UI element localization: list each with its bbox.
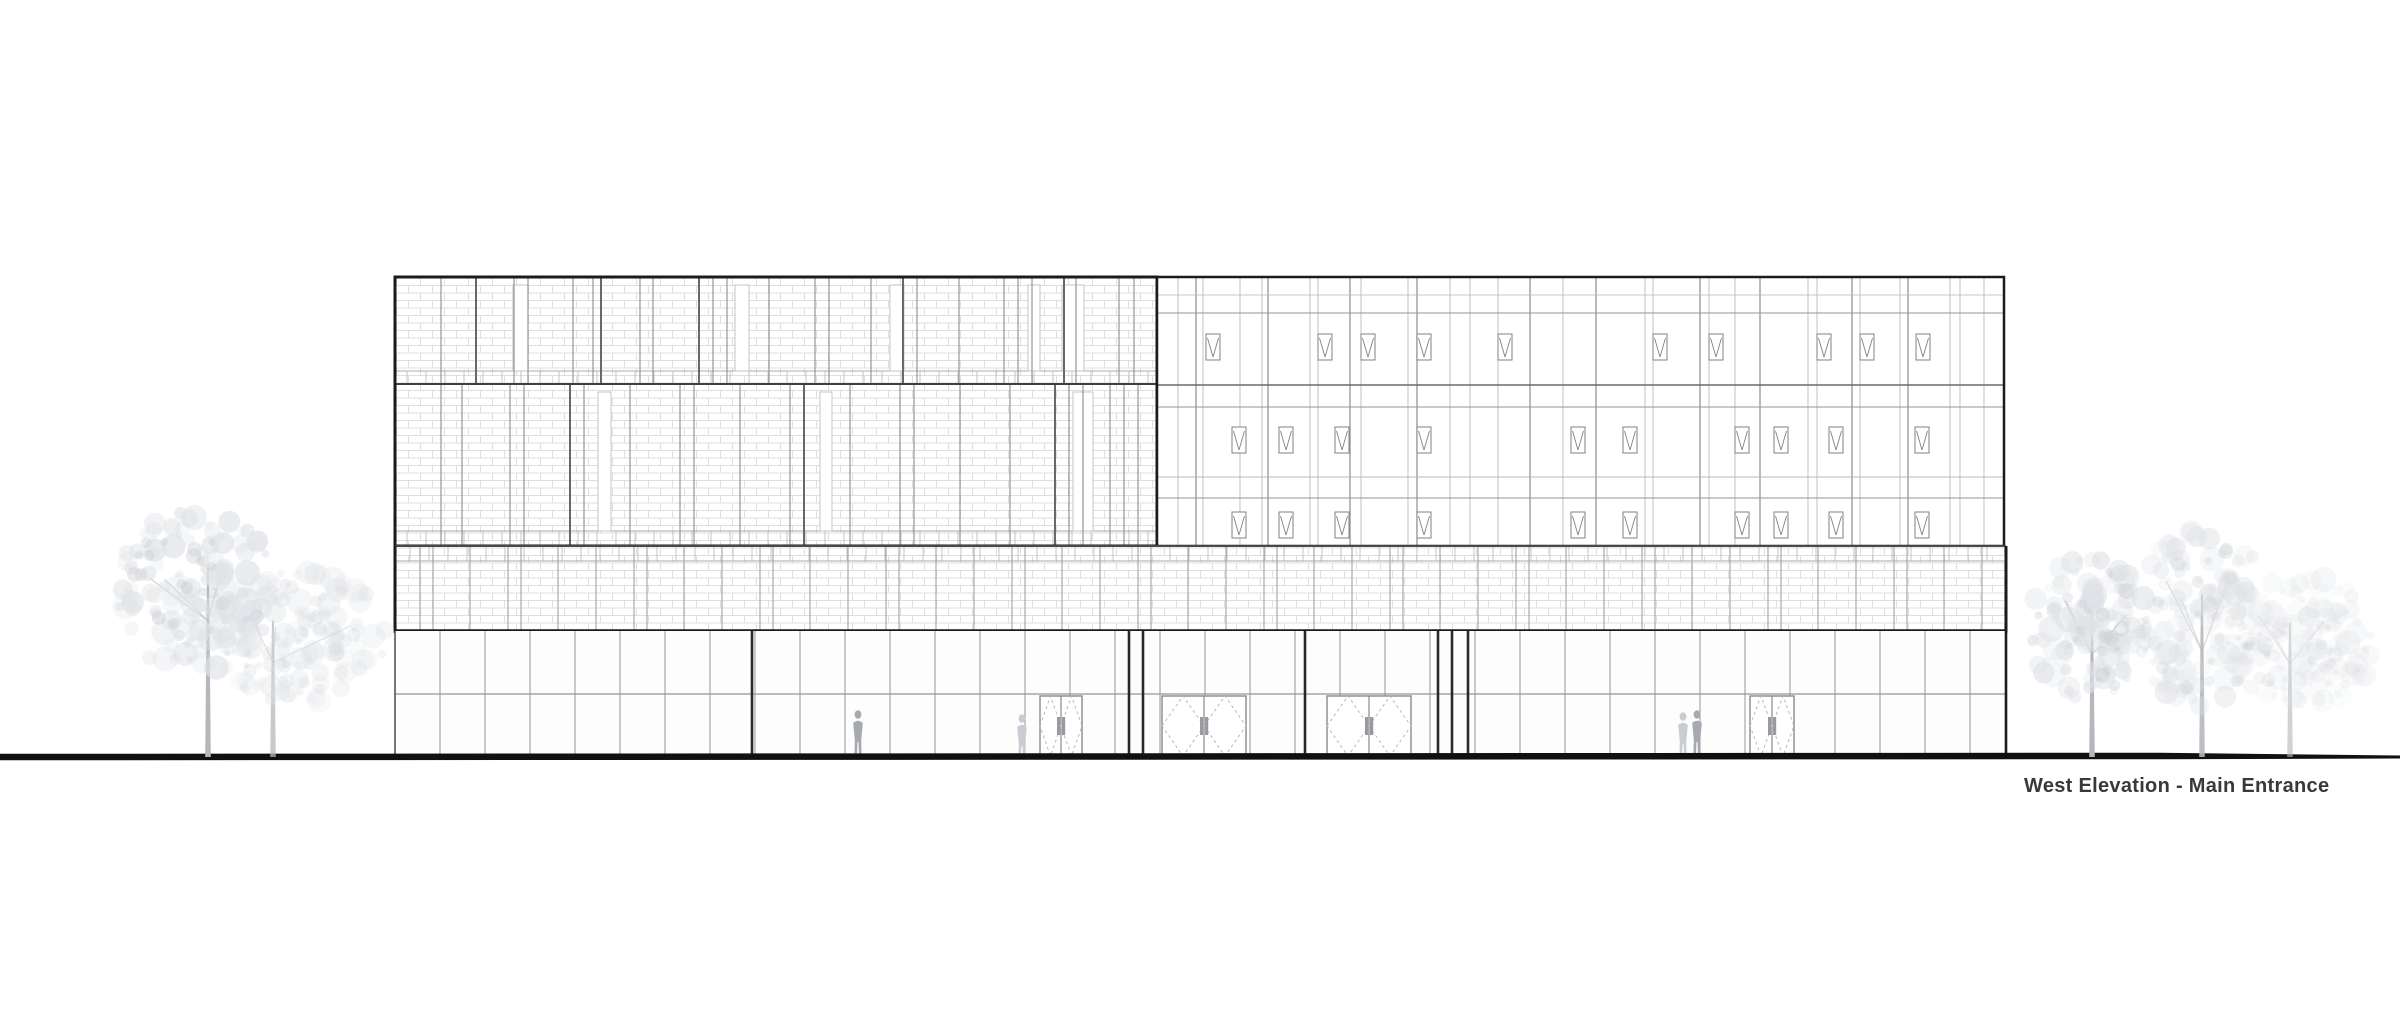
drawing-title: West Elevation - Main Entrance: [2024, 775, 2329, 798]
elevation-sheet: West Elevation - Main Entrance: [0, 0, 2400, 1030]
elevation-drawing: [0, 0, 2400, 1030]
